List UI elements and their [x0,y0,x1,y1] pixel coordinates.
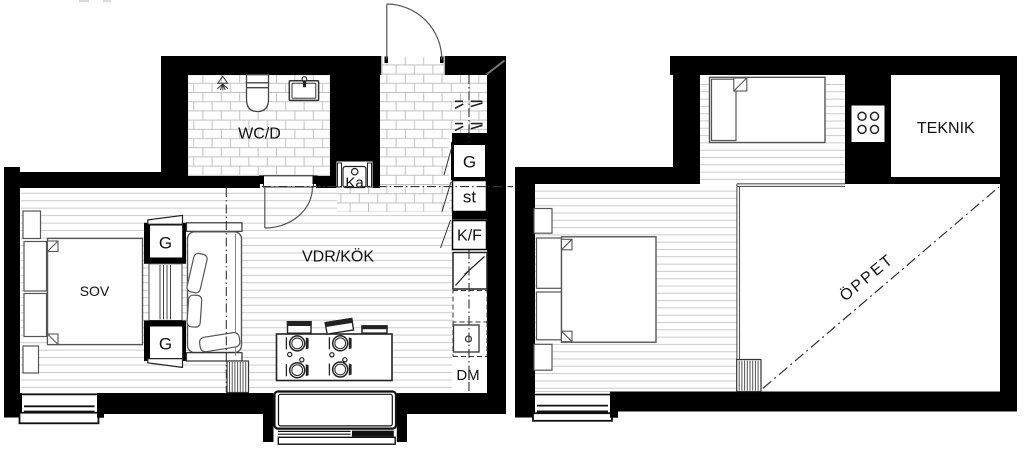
svg-text:VDR/KÖK: VDR/KÖK [302,248,374,266]
svg-text:G: G [463,153,476,172]
svg-text:st: st [463,188,477,207]
svg-text:Ka: Ka [345,175,364,192]
svg-text:WC/D: WC/D [238,125,281,142]
svg-text:DM: DM [456,367,479,384]
svg-text:G: G [159,335,172,354]
svg-text:K/F: K/F [457,228,482,245]
svg-text:SOV: SOV [80,283,110,299]
svg-text:TEKNIK: TEKNIK [917,120,975,137]
svg-text:G: G [159,234,172,253]
